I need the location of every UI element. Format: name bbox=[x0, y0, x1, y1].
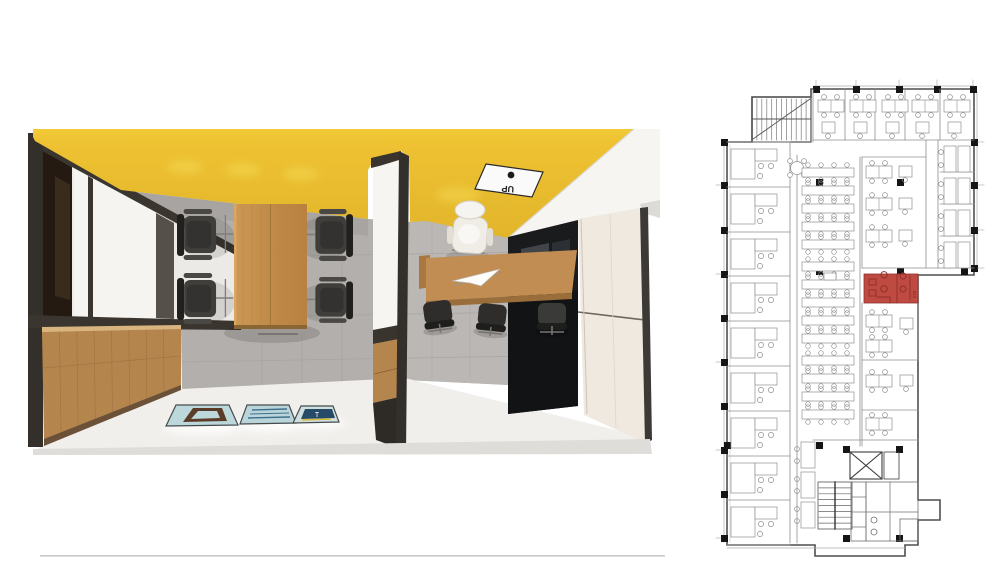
svg-text:T: T bbox=[315, 412, 320, 419]
svg-text:813: 813 bbox=[912, 291, 917, 299]
svg-text:UP: UP bbox=[501, 184, 514, 195]
